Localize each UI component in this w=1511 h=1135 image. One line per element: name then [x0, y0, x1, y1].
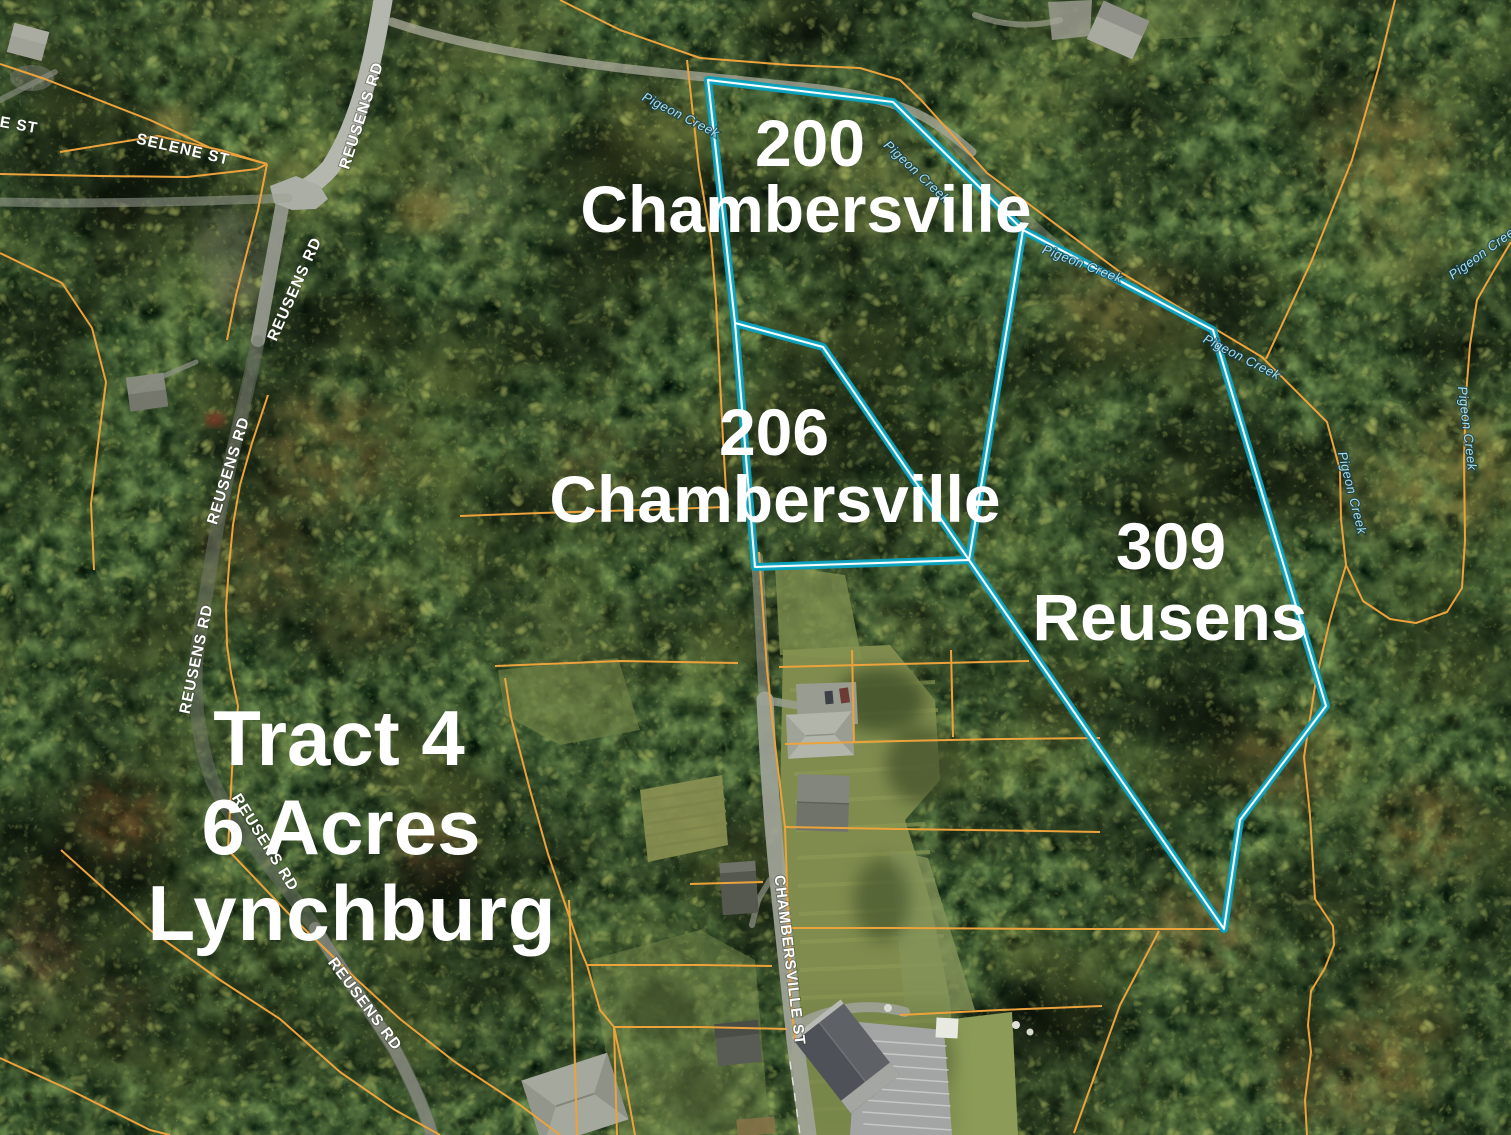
svg-text:Reusens: Reusens	[1032, 580, 1307, 654]
svg-text:6 Acres: 6 Acres	[202, 783, 481, 871]
svg-text:Lynchburg: Lynchburg	[147, 869, 556, 957]
svg-text:309: 309	[1116, 509, 1226, 583]
svg-text:206: 206	[719, 395, 829, 469]
svg-text:Chambersville: Chambersville	[580, 172, 1031, 246]
svg-text:200: 200	[755, 106, 865, 180]
svg-text:Tract 4: Tract 4	[213, 694, 464, 782]
svg-text:Chambersville: Chambersville	[549, 462, 1000, 536]
